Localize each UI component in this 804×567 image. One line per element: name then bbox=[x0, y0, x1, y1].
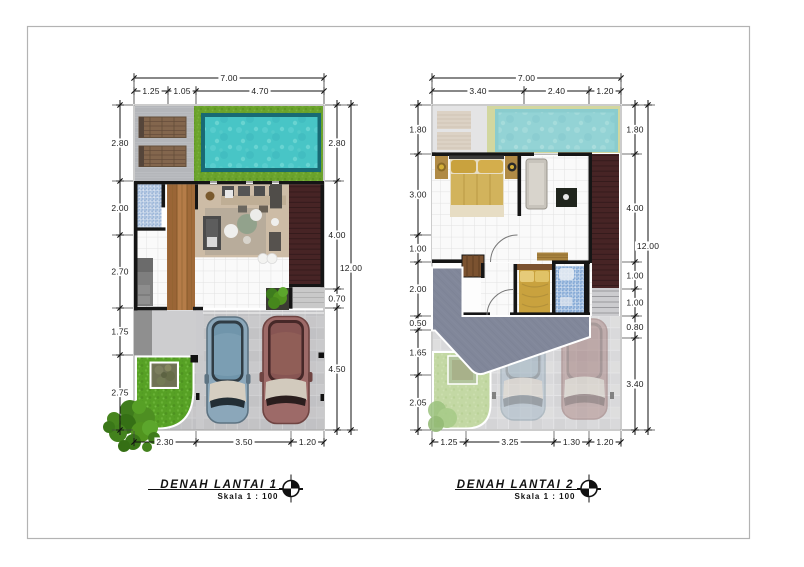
svg-text:1.80: 1.80 bbox=[626, 125, 643, 135]
svg-text:2.00: 2.00 bbox=[409, 284, 426, 294]
svg-text:0.70: 0.70 bbox=[328, 294, 345, 304]
svg-text:1.80: 1.80 bbox=[409, 125, 426, 135]
svg-text:2.80: 2.80 bbox=[328, 138, 345, 148]
svg-text:1.05: 1.05 bbox=[173, 86, 190, 96]
svg-text:4.00: 4.00 bbox=[626, 203, 643, 213]
svg-text:0.80: 0.80 bbox=[626, 322, 643, 332]
svg-text:4.00: 4.00 bbox=[328, 230, 345, 240]
svg-text:4.50: 4.50 bbox=[328, 364, 345, 374]
svg-text:3.40: 3.40 bbox=[626, 379, 643, 389]
svg-text:2.70: 2.70 bbox=[111, 267, 128, 277]
svg-text:2.75: 2.75 bbox=[111, 388, 128, 398]
svg-text:Skala 1 : 100: Skala 1 : 100 bbox=[217, 492, 278, 501]
svg-text:Skala 1 : 100: Skala 1 : 100 bbox=[514, 492, 575, 501]
svg-text:1.65: 1.65 bbox=[409, 348, 426, 358]
svg-text:1.00: 1.00 bbox=[626, 298, 643, 308]
svg-text:12.00: 12.00 bbox=[637, 241, 659, 251]
svg-text:12.00: 12.00 bbox=[340, 263, 362, 273]
svg-text:3.50: 3.50 bbox=[235, 437, 252, 447]
svg-text:1.20: 1.20 bbox=[596, 86, 613, 96]
svg-text:1.25: 1.25 bbox=[440, 437, 457, 447]
svg-text:1.20: 1.20 bbox=[299, 437, 316, 447]
svg-text:1.25: 1.25 bbox=[142, 86, 159, 96]
svg-text:1.30: 1.30 bbox=[563, 437, 580, 447]
svg-text:2.05: 2.05 bbox=[409, 398, 426, 408]
svg-text:1.00: 1.00 bbox=[626, 271, 643, 281]
svg-text:3.25: 3.25 bbox=[501, 437, 518, 447]
svg-text:0.50: 0.50 bbox=[409, 318, 426, 328]
svg-text:1.75: 1.75 bbox=[111, 327, 128, 337]
svg-text:7.00: 7.00 bbox=[220, 73, 237, 83]
svg-text:3.40: 3.40 bbox=[469, 86, 486, 96]
svg-text:3.00: 3.00 bbox=[409, 190, 426, 200]
svg-text:1.00: 1.00 bbox=[409, 244, 426, 254]
svg-text:2.40: 2.40 bbox=[548, 86, 565, 96]
svg-text:4.70: 4.70 bbox=[251, 86, 268, 96]
svg-text:1.20: 1.20 bbox=[596, 437, 613, 447]
svg-text:7.00: 7.00 bbox=[518, 73, 535, 83]
svg-text:2.00: 2.00 bbox=[111, 203, 128, 213]
svg-text:2.30: 2.30 bbox=[156, 437, 173, 447]
svg-text:2.80: 2.80 bbox=[111, 138, 128, 148]
